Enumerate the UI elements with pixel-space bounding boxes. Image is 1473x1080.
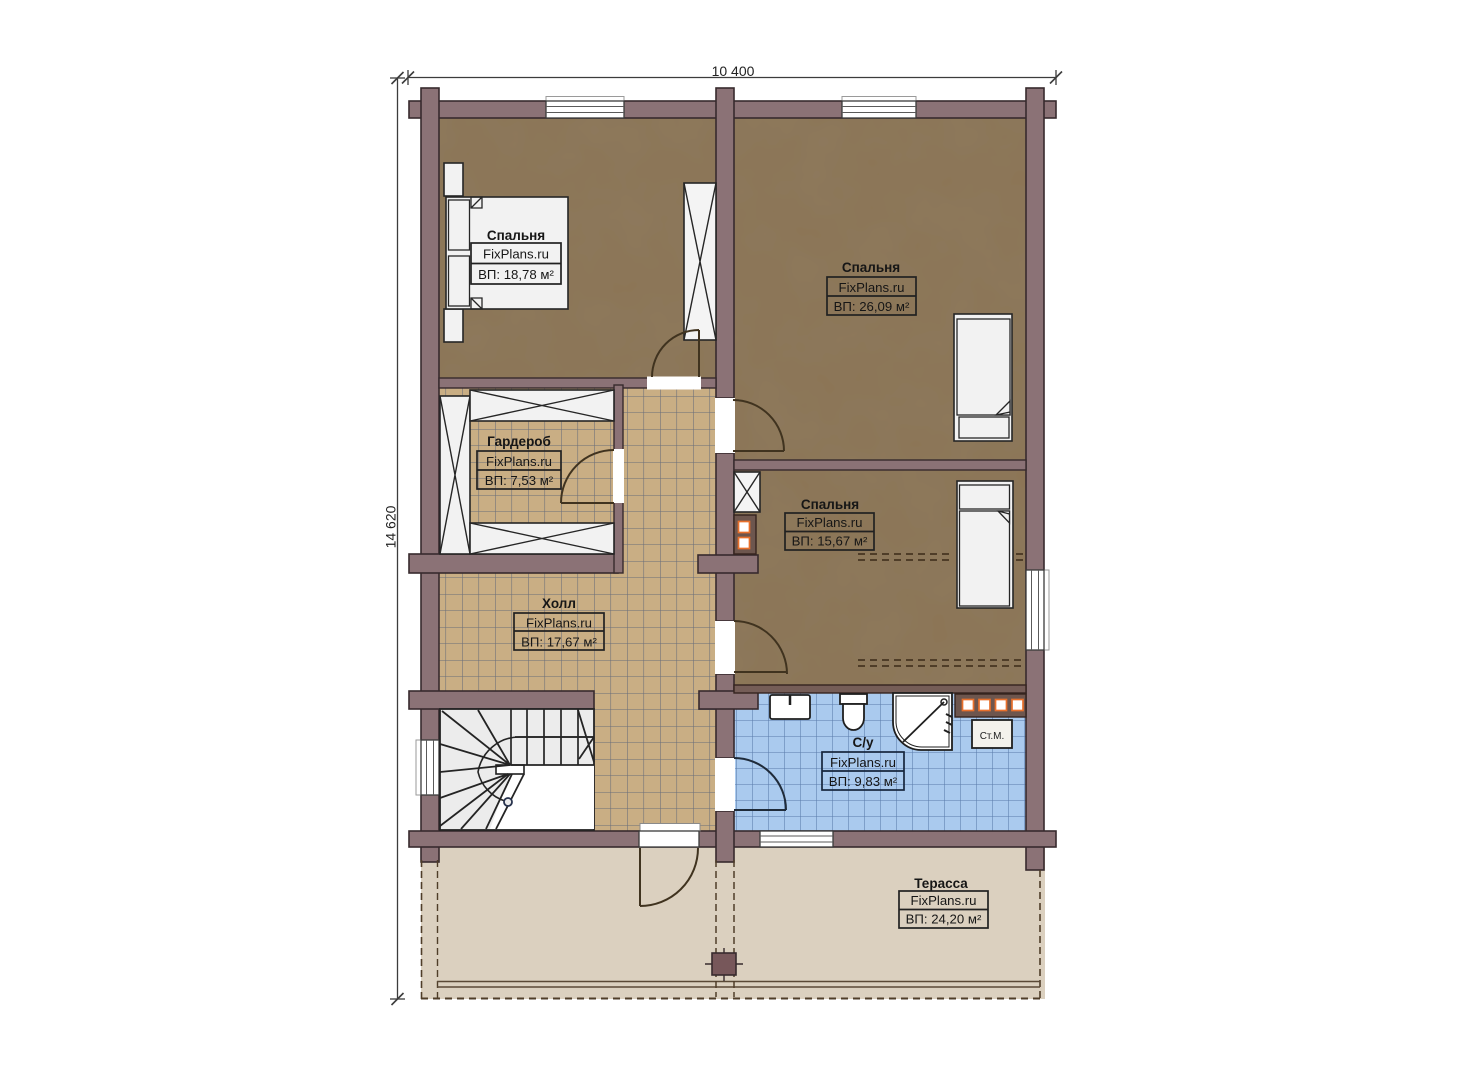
- svg-text:ВП: 24,20 м²: ВП: 24,20 м²: [906, 912, 982, 927]
- svg-text:Холл: Холл: [542, 596, 576, 611]
- svg-text:FixPlans.ru: FixPlans.ru: [911, 893, 977, 908]
- svg-text:FixPlans.ru: FixPlans.ru: [839, 280, 905, 295]
- svg-text:FixPlans.ru: FixPlans.ru: [797, 515, 863, 530]
- svg-text:Спальня: Спальня: [842, 260, 900, 275]
- svg-text:ВП: 7,53 м²: ВП: 7,53 м²: [485, 473, 554, 488]
- svg-text:Ст.М.: Ст.М.: [980, 731, 1005, 742]
- svg-text:FixPlans.ru: FixPlans.ru: [483, 247, 549, 262]
- svg-text:ВП: 9,83 м²: ВП: 9,83 м²: [829, 774, 898, 789]
- svg-text:ВП: 17,67 м²: ВП: 17,67 м²: [521, 635, 597, 650]
- svg-text:ВП: 15,67 м²: ВП: 15,67 м²: [792, 534, 868, 549]
- svg-text:Спальня: Спальня: [487, 228, 545, 243]
- svg-text:ВП: 18,78 м²: ВП: 18,78 м²: [478, 267, 554, 282]
- svg-text:Спальня: Спальня: [801, 497, 859, 512]
- svg-text:С/у: С/у: [852, 735, 874, 750]
- svg-text:Терасса: Терасса: [914, 876, 968, 891]
- svg-text:FixPlans.ru: FixPlans.ru: [526, 616, 592, 631]
- svg-text:14 620: 14 620: [383, 505, 399, 548]
- svg-text:FixPlans.ru: FixPlans.ru: [486, 454, 552, 469]
- svg-text:ВП: 26,09 м²: ВП: 26,09 м²: [834, 299, 910, 314]
- svg-text:10 400: 10 400: [712, 63, 755, 79]
- svg-text:Гардероб: Гардероб: [487, 434, 551, 449]
- svg-text:FixPlans.ru: FixPlans.ru: [830, 755, 896, 770]
